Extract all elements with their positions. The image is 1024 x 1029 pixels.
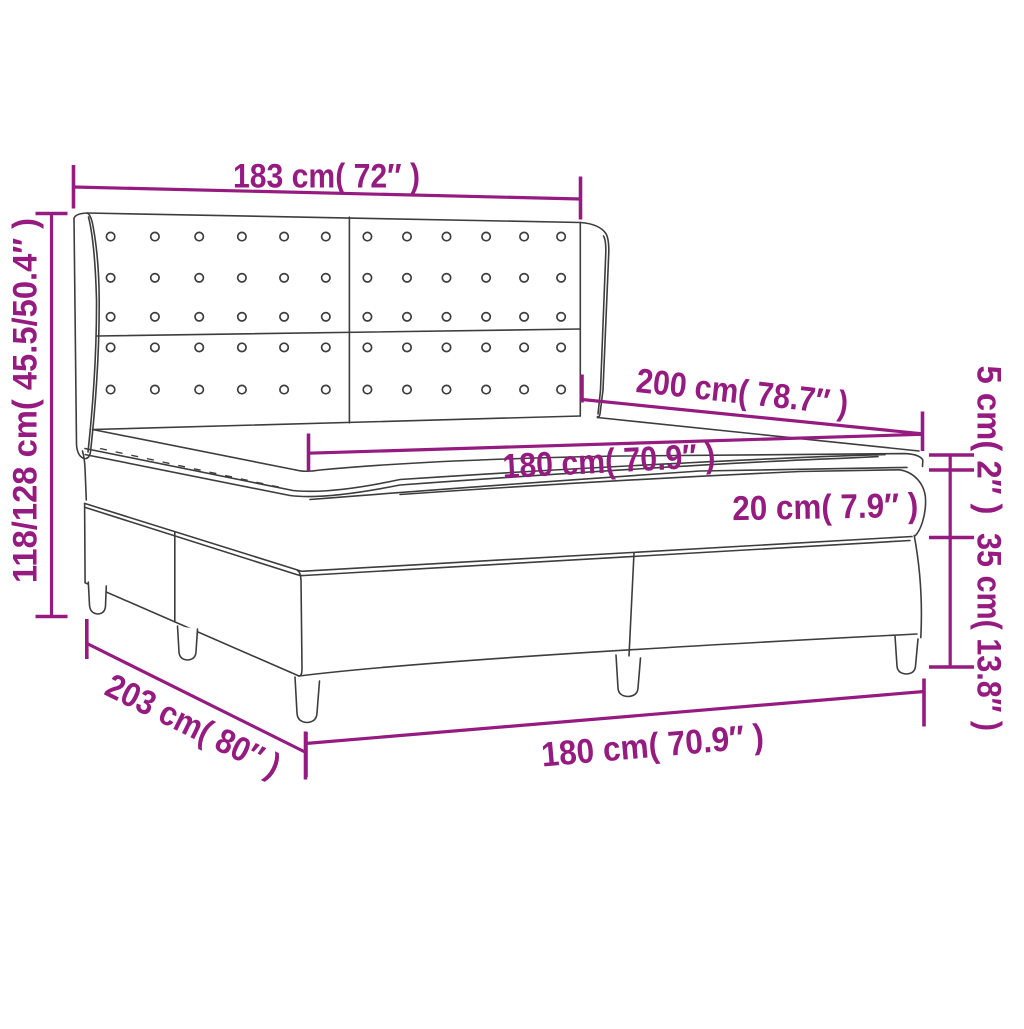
- svg-text:5 cm( 2″ ): 5 cm( 2″ ): [970, 366, 1008, 515]
- svg-text:35 cm( 13.8″ ): 35 cm( 13.8″ ): [970, 533, 1008, 731]
- svg-text:20 cm( 7.9″ ): 20 cm( 7.9″ ): [732, 487, 919, 528]
- svg-text:183 cm( 72″ ): 183 cm( 72″ ): [233, 158, 420, 196]
- svg-text:118/128 cm( 45.5/50.4″ ): 118/128 cm( 45.5/50.4″ ): [7, 218, 45, 583]
